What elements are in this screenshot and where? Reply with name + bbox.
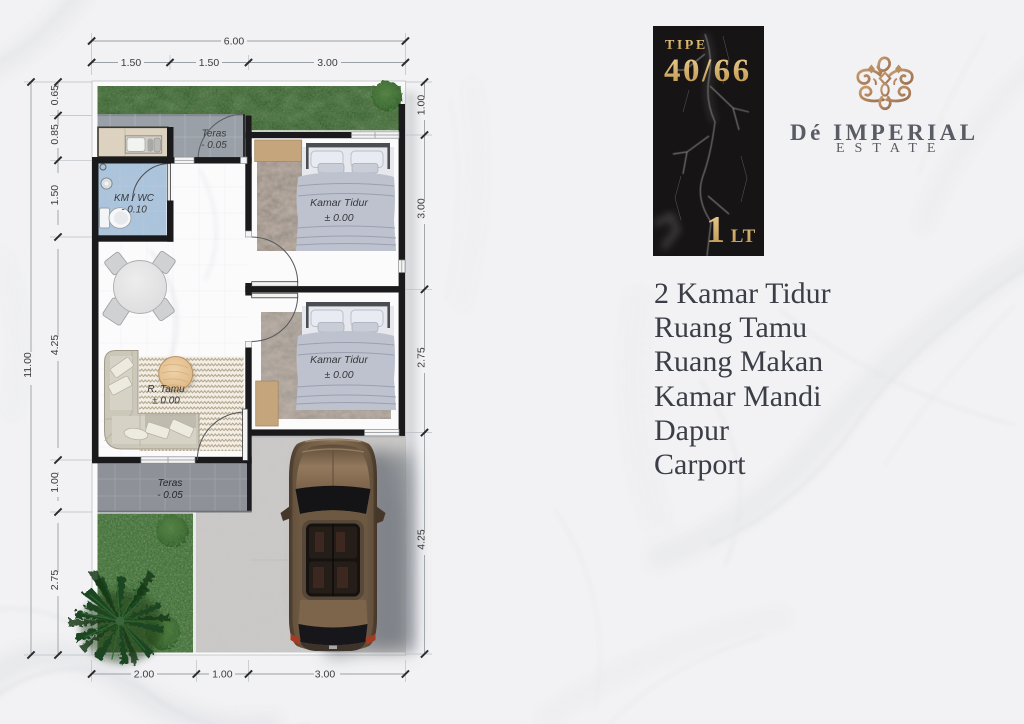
svg-text:- 0.10: - 0.10 — [121, 205, 147, 216]
svg-text:Kamar Tidur: Kamar Tidur — [310, 354, 368, 366]
svg-text:2.75: 2.75 — [416, 347, 428, 368]
svg-text:3.00: 3.00 — [317, 57, 338, 69]
svg-text:1.00: 1.00 — [212, 669, 233, 681]
svg-text:3.00: 3.00 — [315, 669, 336, 681]
svg-text:- 0.05: - 0.05 — [157, 490, 183, 501]
svg-text:Kamar Tidur: Kamar Tidur — [310, 197, 368, 209]
svg-text:R. Tamu: R. Tamu — [147, 384, 185, 395]
svg-text:11.00: 11.00 — [22, 352, 34, 378]
svg-text:1.50: 1.50 — [199, 57, 220, 69]
svg-text:6.00: 6.00 — [224, 36, 245, 48]
svg-text:2.75: 2.75 — [49, 570, 61, 591]
svg-text:4.25: 4.25 — [49, 335, 61, 356]
svg-text:- 0.05: - 0.05 — [201, 140, 227, 151]
svg-text:2.00: 2.00 — [134, 669, 155, 681]
svg-text:Teras: Teras — [158, 478, 183, 489]
svg-text:± 0.00: ± 0.00 — [152, 396, 180, 407]
svg-text:1.50: 1.50 — [49, 185, 61, 206]
svg-text:1.00: 1.00 — [49, 472, 61, 493]
svg-text:0.65: 0.65 — [49, 85, 61, 106]
svg-text:1.00: 1.00 — [416, 95, 428, 116]
svg-text:± 0.00: ± 0.00 — [324, 369, 353, 381]
svg-text:3.00: 3.00 — [416, 198, 428, 219]
svg-text:± 0.00: ± 0.00 — [324, 212, 353, 224]
svg-text:KM / WC: KM / WC — [114, 193, 155, 204]
svg-text:1.50: 1.50 — [121, 57, 142, 69]
svg-text:0.85: 0.85 — [49, 124, 61, 145]
svg-text:4.25: 4.25 — [416, 529, 428, 550]
